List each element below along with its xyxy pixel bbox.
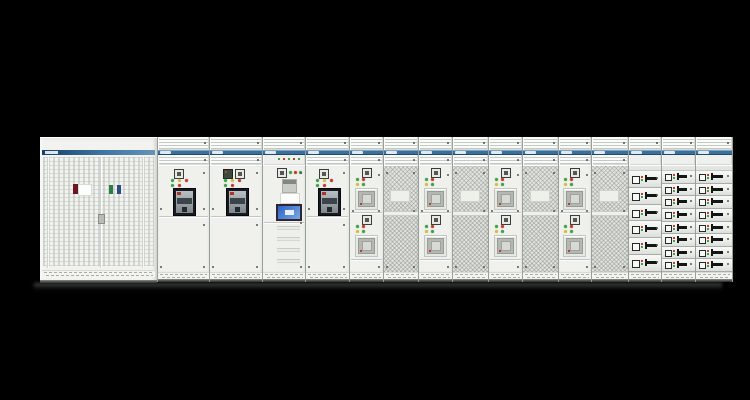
ventilation-louvers-top bbox=[524, 137, 557, 150]
mesh-label-plate bbox=[390, 190, 410, 202]
screw-dot bbox=[455, 172, 457, 174]
indicator-led bbox=[330, 179, 333, 182]
indicator-led bbox=[289, 171, 292, 174]
drawer-led-green bbox=[641, 179, 643, 181]
section-body bbox=[662, 165, 695, 272]
drawer-indicator bbox=[699, 225, 706, 232]
ventilation-louvers-top bbox=[307, 137, 348, 150]
ventilation-louvers-top bbox=[454, 137, 487, 150]
control-button bbox=[362, 215, 372, 225]
indicator-led bbox=[495, 225, 498, 228]
drawer-led-green bbox=[673, 177, 675, 179]
mcc-drawer-unit bbox=[629, 188, 661, 205]
screw-dot bbox=[256, 172, 258, 174]
drawer-handle-icon bbox=[711, 249, 723, 256]
brand-band bbox=[42, 150, 155, 155]
brand-label bbox=[631, 151, 642, 154]
drawer-led-red bbox=[641, 193, 643, 195]
screw-dot bbox=[343, 266, 345, 268]
indicator-led bbox=[495, 230, 498, 233]
drawer-handle-icon bbox=[645, 259, 657, 266]
breaker-dark-band bbox=[230, 198, 245, 204]
screw-dot bbox=[378, 174, 380, 176]
brand-label bbox=[265, 151, 276, 154]
bottom-vent-strip bbox=[453, 272, 488, 279]
indicator-led bbox=[495, 183, 498, 186]
drawer-led-red bbox=[641, 176, 643, 178]
meter-display bbox=[563, 235, 586, 257]
drawer-handle-icon bbox=[677, 186, 687, 193]
section-body bbox=[263, 165, 305, 272]
drawer-led-green bbox=[673, 215, 675, 217]
green-sticker bbox=[109, 185, 113, 194]
indicator-led bbox=[570, 225, 573, 228]
section-control-hmi bbox=[262, 137, 305, 282]
section-mesh-door-2 bbox=[452, 137, 488, 282]
control-button bbox=[501, 168, 511, 178]
meter-face-inner bbox=[362, 241, 372, 251]
bottom-vent-strip bbox=[384, 272, 418, 279]
drawer-indicator bbox=[632, 226, 640, 234]
mcc-drawer-unit bbox=[662, 196, 695, 209]
drawer-handle-icon bbox=[677, 224, 687, 231]
section-acb-incomer-2 bbox=[209, 137, 262, 282]
cabinet-base bbox=[696, 279, 732, 282]
meter-display bbox=[355, 235, 378, 257]
bottom-vent-strip bbox=[696, 272, 732, 279]
drawer-led-red bbox=[707, 212, 709, 214]
drawer-led-green bbox=[641, 246, 643, 248]
ventilation-louvers-top bbox=[593, 137, 627, 150]
drawer-indicator bbox=[665, 250, 672, 257]
ventilation-louvers-lower bbox=[454, 155, 487, 165]
drawer-indicator bbox=[632, 243, 640, 251]
panel-divider bbox=[264, 222, 304, 223]
drawer-handle-icon bbox=[677, 236, 687, 243]
drawer-handle-icon bbox=[711, 224, 723, 231]
bottom-vent-strip bbox=[42, 270, 155, 277]
screw-dot bbox=[594, 266, 596, 268]
indicator-led bbox=[501, 183, 504, 186]
mcc-drawer-unit bbox=[696, 259, 732, 272]
indicator-led bbox=[231, 179, 234, 182]
cabinet-base bbox=[629, 279, 661, 282]
meter-display bbox=[494, 188, 517, 210]
indicator-led bbox=[185, 179, 188, 182]
drawer-handle-icon bbox=[711, 211, 723, 218]
screw-dot bbox=[256, 266, 258, 268]
drawer-indicator bbox=[665, 262, 672, 269]
panel-divider bbox=[211, 216, 261, 217]
ventilation-louvers-lower bbox=[385, 155, 417, 165]
screw-dot bbox=[690, 238, 692, 240]
mcc-drawer-unit bbox=[629, 255, 661, 272]
racking-handle bbox=[327, 207, 332, 212]
drawer-led-red bbox=[673, 250, 675, 252]
screw-dot bbox=[553, 266, 555, 268]
brand-label bbox=[491, 151, 502, 154]
bottom-vent-strip bbox=[629, 272, 661, 279]
section-acb-incomer-3 bbox=[305, 137, 349, 282]
cabinet-base bbox=[158, 279, 209, 282]
drawer-indicator bbox=[632, 193, 640, 201]
indicator-led bbox=[316, 179, 319, 182]
screw-dot bbox=[413, 210, 415, 212]
cabinet-base bbox=[523, 279, 558, 282]
indicator-led bbox=[564, 230, 567, 233]
ventilation-louvers-lower bbox=[593, 155, 627, 165]
cabinet-base bbox=[662, 279, 695, 282]
screw-dot bbox=[656, 211, 658, 213]
indicator-strip bbox=[264, 155, 304, 165]
section-body bbox=[559, 165, 591, 272]
drawer-led-green bbox=[673, 240, 675, 242]
screw-dot bbox=[623, 172, 625, 174]
section-feeder-3 bbox=[488, 137, 522, 282]
hmi-window bbox=[285, 210, 294, 215]
cabinet-base bbox=[592, 279, 628, 282]
cabinet-base bbox=[263, 279, 305, 282]
mcc-drawer-unit bbox=[662, 234, 695, 247]
indicator-led bbox=[362, 225, 365, 228]
mcc-drawer-unit bbox=[696, 209, 732, 222]
screw-dot bbox=[378, 266, 380, 268]
section-mesh-door-1 bbox=[383, 137, 418, 282]
mcc-drawer-unit bbox=[662, 247, 695, 260]
drawer-led-red bbox=[707, 237, 709, 239]
indicator-led bbox=[171, 179, 174, 182]
bottom-vent-strip bbox=[523, 272, 558, 279]
screw-dot bbox=[623, 210, 625, 212]
drawer-handle-icon bbox=[711, 198, 723, 205]
screw-dot bbox=[386, 172, 388, 174]
drawer-led-green bbox=[707, 240, 709, 242]
ventilation-louvers-top bbox=[697, 137, 731, 150]
screw-dot bbox=[308, 266, 310, 268]
indicator-led bbox=[278, 158, 280, 160]
screw-dot bbox=[343, 172, 345, 174]
breaker-red-chip bbox=[230, 192, 234, 195]
brand-label bbox=[594, 151, 605, 154]
drawer-led-green bbox=[641, 229, 643, 231]
brand-label bbox=[664, 151, 675, 154]
screw-dot bbox=[483, 266, 485, 268]
screw-dot bbox=[553, 172, 555, 174]
screw-dot bbox=[656, 194, 658, 196]
mcc-drawer-unit bbox=[662, 184, 695, 197]
screw-dot bbox=[413, 266, 415, 268]
cabinet-base bbox=[350, 279, 383, 282]
breaker-red-chip bbox=[177, 192, 181, 195]
screw-dot bbox=[378, 210, 380, 212]
indicator-led bbox=[431, 178, 434, 181]
indicator-led bbox=[356, 225, 359, 228]
screw-dot bbox=[594, 172, 596, 174]
drawer-led-green bbox=[707, 253, 709, 255]
drawer-led-red bbox=[673, 174, 675, 176]
indicator-led bbox=[178, 184, 181, 187]
meter-face-inner bbox=[570, 241, 580, 251]
ventilation-louvers-top bbox=[560, 137, 590, 150]
ventilation-louvers-lower bbox=[560, 155, 590, 165]
screw-dot bbox=[343, 208, 345, 210]
ventilation-louvers-top bbox=[630, 137, 660, 150]
mcc-drawer-unit bbox=[662, 222, 695, 235]
screw-dot bbox=[160, 266, 162, 268]
drawer-indicator bbox=[699, 237, 706, 244]
screw-dot bbox=[447, 174, 449, 176]
screw-dot bbox=[352, 210, 354, 212]
indicator-led bbox=[501, 230, 504, 233]
mesh-label-plate bbox=[460, 190, 480, 202]
indicator-led bbox=[570, 183, 573, 186]
screw-dot bbox=[256, 224, 258, 226]
ventilation-louvers-lower bbox=[490, 155, 521, 165]
indicator-led bbox=[283, 158, 285, 160]
drawer-indicator bbox=[665, 187, 672, 194]
drawer-led-red bbox=[673, 237, 675, 239]
indicator-led bbox=[362, 178, 365, 181]
drawer-led-green bbox=[641, 213, 643, 215]
cabinet-base bbox=[559, 279, 591, 282]
section-body bbox=[384, 165, 418, 272]
section-feeder-4 bbox=[558, 137, 591, 282]
cabinet-base bbox=[489, 279, 522, 282]
ventilation-louvers-lower bbox=[159, 155, 208, 165]
brand-label bbox=[561, 151, 572, 154]
drawer-led-red bbox=[707, 199, 709, 201]
brand-label bbox=[160, 151, 171, 154]
drawer-handle-icon bbox=[677, 173, 687, 180]
drawer-led-red bbox=[641, 260, 643, 262]
cabinet-base bbox=[453, 279, 488, 282]
section-mesh-door-3 bbox=[522, 137, 558, 282]
section-body bbox=[210, 165, 262, 272]
relay-red-dot bbox=[225, 171, 227, 173]
meter-face-inner bbox=[431, 241, 441, 251]
mcc-drawer-unit bbox=[662, 171, 695, 184]
mesh-label-plate bbox=[530, 190, 550, 202]
mcc-drawer-unit bbox=[696, 184, 732, 197]
breaker-dark-band bbox=[322, 198, 337, 204]
screw-dot bbox=[727, 226, 729, 228]
screw-dot bbox=[413, 172, 415, 174]
cabinet-base bbox=[419, 279, 452, 282]
meter-face-inner bbox=[501, 241, 511, 251]
switchboard-lineup bbox=[157, 137, 733, 282]
section-body bbox=[629, 165, 661, 272]
control-button bbox=[570, 215, 580, 225]
door-handle bbox=[98, 214, 105, 224]
meter-face-inner bbox=[501, 194, 511, 204]
ventilation-louvers-lower bbox=[420, 155, 451, 165]
drawer-indicator bbox=[699, 199, 706, 206]
control-button bbox=[362, 168, 372, 178]
screw-dot bbox=[561, 210, 563, 212]
screw-dot bbox=[553, 210, 555, 212]
door-split-seam bbox=[100, 157, 101, 268]
drawer-handle-icon bbox=[677, 198, 687, 205]
mcc-drawer-unit bbox=[662, 259, 695, 272]
drawer-led-green bbox=[641, 196, 643, 198]
indicator-led bbox=[323, 184, 326, 187]
section-mcc-drawers-3 bbox=[695, 137, 733, 282]
section-body bbox=[419, 165, 452, 272]
drawer-indicator bbox=[665, 212, 672, 219]
bottom-vent-strip bbox=[489, 272, 522, 279]
meter-red-dot bbox=[568, 203, 570, 205]
drawer-led-green bbox=[673, 202, 675, 204]
ventilation-louvers-top bbox=[264, 137, 304, 150]
screw-dot bbox=[623, 266, 625, 268]
panel-divider bbox=[560, 259, 590, 260]
indicator-led bbox=[501, 178, 504, 181]
indicator-led bbox=[316, 184, 319, 187]
screw-dot bbox=[656, 177, 658, 179]
mcc-drawer-unit bbox=[629, 238, 661, 255]
meter-red-dot bbox=[360, 203, 362, 205]
screw-dot bbox=[727, 238, 729, 240]
drawer-indicator bbox=[632, 176, 640, 184]
ventilation-louvers-top bbox=[211, 137, 261, 150]
bottom-vent-strip bbox=[592, 272, 628, 279]
drawer-indicator bbox=[699, 250, 706, 257]
brand-label bbox=[308, 151, 319, 154]
screw-dot bbox=[690, 175, 692, 177]
screw-dot bbox=[491, 210, 493, 212]
screw-dot bbox=[160, 208, 162, 210]
drawer-led-red bbox=[673, 212, 675, 214]
ventilation-louvers-top bbox=[351, 137, 382, 150]
brand-label bbox=[386, 151, 397, 154]
screw-dot bbox=[517, 174, 519, 176]
drawer-led-red bbox=[673, 187, 675, 189]
screw-dot bbox=[690, 200, 692, 202]
control-button bbox=[431, 215, 441, 225]
ventilation-louvers-top bbox=[490, 137, 521, 150]
drawer-led-red bbox=[707, 250, 709, 252]
label-plate bbox=[280, 193, 300, 204]
indicator-led bbox=[425, 178, 428, 181]
section-body bbox=[523, 165, 558, 272]
mcc-drawer-unit bbox=[696, 247, 732, 260]
bottom-vent-strip bbox=[210, 272, 262, 279]
screw-dot bbox=[690, 226, 692, 228]
drawer-led-red bbox=[707, 225, 709, 227]
meter-display bbox=[424, 188, 447, 210]
control-button bbox=[570, 168, 580, 178]
drawer-indicator bbox=[699, 262, 706, 269]
meter-red-dot bbox=[499, 250, 501, 252]
breaker-window bbox=[226, 188, 249, 216]
drawer-handle-icon bbox=[711, 261, 723, 268]
screw-dot bbox=[656, 244, 658, 246]
screw-dot bbox=[483, 210, 485, 212]
section-body bbox=[696, 165, 732, 272]
drawer-indicator bbox=[699, 187, 706, 194]
panel-divider bbox=[351, 212, 382, 213]
drawer-handle-icon bbox=[677, 211, 687, 218]
bottom-vent-strip bbox=[158, 272, 209, 279]
cabinet-base bbox=[384, 279, 418, 282]
ventilation-louvers-top bbox=[385, 137, 417, 150]
screw-dot bbox=[586, 174, 588, 176]
mcc-drawer-unit bbox=[629, 205, 661, 222]
power-supply-module bbox=[282, 179, 297, 193]
drawer-led-red bbox=[707, 262, 709, 264]
indicator-led bbox=[431, 183, 434, 186]
screw-dot bbox=[447, 266, 449, 268]
meter-face-inner bbox=[570, 194, 580, 204]
drawer-indicator bbox=[699, 174, 706, 181]
bottom-vent-strip bbox=[263, 272, 305, 279]
indicator-led bbox=[238, 179, 241, 182]
section-body bbox=[158, 165, 209, 272]
ventilation-louvers-lower bbox=[307, 155, 348, 165]
indicator-led bbox=[298, 158, 300, 160]
mesh-label-plate bbox=[599, 190, 619, 202]
screw-dot bbox=[727, 251, 729, 253]
drawer-led-green bbox=[707, 265, 709, 267]
ventilation-louvers-top bbox=[159, 137, 208, 150]
bottom-vent-strip bbox=[419, 272, 452, 279]
meter-red-dot bbox=[429, 203, 431, 205]
drawer-led-red bbox=[641, 210, 643, 212]
racking-handle bbox=[235, 207, 240, 212]
screw-dot bbox=[727, 263, 729, 265]
screw-dot bbox=[656, 261, 658, 263]
indicator-led bbox=[293, 158, 295, 160]
brand-label bbox=[352, 151, 363, 154]
section-body bbox=[306, 165, 349, 272]
meter-face-inner bbox=[431, 194, 441, 204]
screw-dot bbox=[727, 188, 729, 190]
section-mesh-door-4 bbox=[591, 137, 628, 282]
section-mcc-drawers-2 bbox=[661, 137, 695, 282]
protection-relay-display bbox=[223, 169, 233, 179]
screw-dot bbox=[300, 266, 302, 268]
module-top bbox=[283, 180, 296, 184]
screw-dot bbox=[525, 266, 527, 268]
control-button bbox=[277, 168, 287, 178]
indicator-led bbox=[356, 178, 359, 181]
control-button bbox=[174, 169, 184, 179]
section-body bbox=[489, 165, 522, 272]
breaker-window bbox=[318, 188, 341, 216]
section-feeder-1 bbox=[349, 137, 383, 282]
screw-dot bbox=[517, 210, 519, 212]
section-feeder-2 bbox=[418, 137, 452, 282]
brand-label bbox=[698, 151, 709, 154]
meter-red-dot bbox=[360, 250, 362, 252]
drawer-led-green bbox=[673, 265, 675, 267]
meter-face-inner bbox=[362, 194, 372, 204]
drawer-indicator bbox=[632, 260, 640, 268]
indicator-led bbox=[323, 179, 326, 182]
indicator-led bbox=[431, 230, 434, 233]
screw-dot bbox=[727, 175, 729, 177]
cabinet-base bbox=[210, 279, 262, 282]
screw-dot bbox=[203, 208, 205, 210]
drawer-handle-icon bbox=[711, 186, 723, 193]
ventilation-louvers-top bbox=[663, 137, 694, 150]
meter-display bbox=[355, 188, 378, 210]
indicator-led bbox=[224, 179, 227, 182]
screw-dot bbox=[421, 210, 423, 212]
drawer-indicator bbox=[699, 212, 706, 219]
brand-label bbox=[525, 151, 536, 154]
panel-seam bbox=[142, 157, 143, 268]
